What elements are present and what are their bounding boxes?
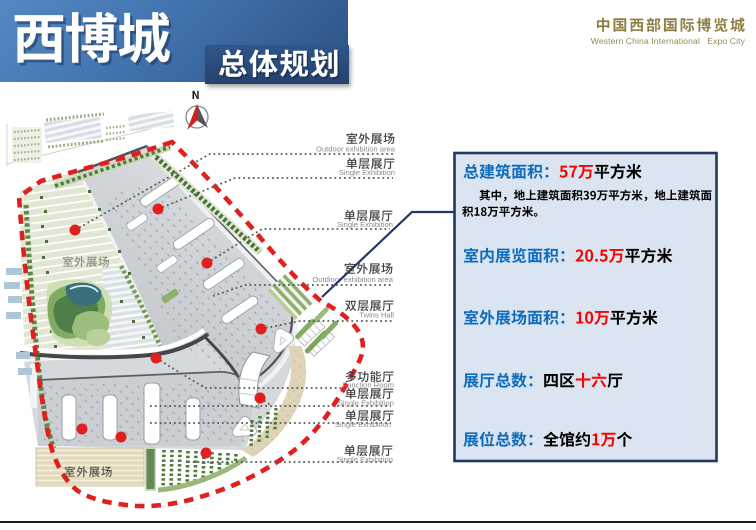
svg-text:Single Exhibition: Single Exhibition	[338, 399, 394, 408]
svg-text:Single Exhibition: Single Exhibition	[337, 220, 393, 229]
svg-text:Twins Hall: Twins Hall	[359, 311, 394, 320]
svg-text:Single Exhibition: Single Exhibition	[339, 168, 395, 177]
svg-text:Single Exhibition: Single Exhibition	[337, 455, 393, 464]
svg-text:Single Exhibition: Single Exhibition	[335, 420, 391, 429]
svg-text:Outdoor exhibition area: Outdoor exhibition area	[316, 145, 396, 154]
svg-text:Outdioor exhibition area: Outdioor exhibition area	[312, 275, 393, 284]
svg-text:Function Room: Function Room	[343, 381, 395, 390]
